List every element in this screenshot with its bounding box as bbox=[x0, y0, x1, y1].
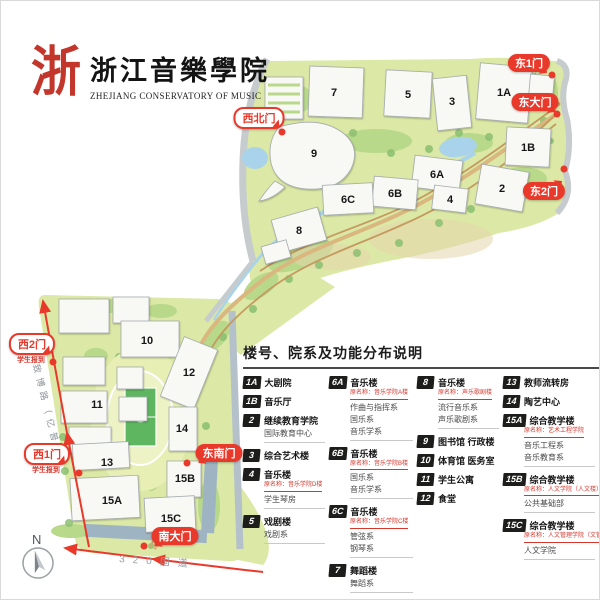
building-number-badge: 11 bbox=[416, 473, 434, 486]
department-item: 音乐工程系 bbox=[524, 440, 595, 452]
building-number-badge: 15A bbox=[502, 414, 526, 427]
departments-list: 音乐工程系音乐教育系 bbox=[524, 440, 595, 467]
gate-note-registration: 学生报到 bbox=[17, 355, 45, 365]
departments-list: 戏剧系 bbox=[264, 529, 325, 544]
departments-list: 公共基础部 bbox=[524, 498, 595, 513]
building-name: 体育馆 医务室 bbox=[438, 454, 495, 467]
building-label: 9 bbox=[311, 148, 317, 160]
gate-label-west1: 西1门 学生报到 bbox=[24, 443, 70, 465]
department-item: 音乐教育系 bbox=[524, 452, 595, 464]
building-label: 15B bbox=[175, 473, 195, 485]
legend-entry: 6C音乐楼原名称：音乐学院C楼管弦系钢琴系 bbox=[329, 505, 417, 558]
building-name: 音乐楼 bbox=[351, 376, 378, 389]
building-label: 1B bbox=[521, 142, 535, 154]
building-name: 继续教育学院 bbox=[264, 414, 318, 427]
departments-list: 舞蹈系 bbox=[350, 578, 413, 593]
legend-columns: 1A大剧院1B音乐厅2继续教育学院国际教育中心3综合艺术楼4音乐楼原名称：音乐学… bbox=[243, 376, 599, 599]
legend-entry: 1B音乐厅 bbox=[243, 395, 329, 408]
legend-entry: 8音乐楼原名称：声乐歌剧楼流行音乐系声乐歌剧系 bbox=[417, 376, 503, 429]
legend-column: 8音乐楼原名称：声乐歌剧楼流行音乐系声乐歌剧系9图书馆 行政楼10体育馆 医务室… bbox=[417, 376, 503, 599]
legend-entry: 15C综合教学楼原名称：人文管理学院（文管楼）人文学院 bbox=[503, 519, 599, 560]
school-name-cn: 浙江音樂學院 bbox=[90, 49, 270, 88]
departments-list: 人文学院 bbox=[524, 545, 595, 560]
building-name: 综合艺术楼 bbox=[264, 449, 309, 462]
department-item: 戏剧系 bbox=[264, 529, 325, 541]
gate-note-registration: 学生报到 bbox=[32, 465, 60, 475]
school-logo: 浙 浙江音樂學院 ZHEJIANG CONSERVATORY OF MUSIC bbox=[31, 49, 270, 101]
gate-label-southeast: 东南门 bbox=[196, 444, 243, 462]
gate-dot bbox=[184, 460, 191, 467]
building-name: 舞蹈楼 bbox=[350, 564, 377, 577]
building-number-badge: 8 bbox=[416, 376, 434, 389]
building-number-badge: 15B bbox=[502, 473, 526, 486]
building-number-badge: 13 bbox=[502, 376, 520, 389]
building-label: 10 bbox=[141, 335, 153, 347]
building-number-badge: 1A bbox=[242, 376, 261, 389]
legend-title: 楼号、院系及功能分布说明 bbox=[243, 343, 599, 369]
department-item: 管弦系 bbox=[350, 531, 413, 543]
legend-column: 1A大剧院1B音乐厅2继续教育学院国际教育中心3综合艺术楼4音乐楼原名称：音乐学… bbox=[243, 376, 329, 599]
department-item: 国际教育中心 bbox=[264, 428, 325, 440]
department-item: 公共基础部 bbox=[524, 498, 595, 510]
legend-panel: 楼号、院系及功能分布说明 1A大剧院1B音乐厅2继续教育学院国际教育中心3综合艺… bbox=[243, 343, 599, 599]
building-number-badge: 14 bbox=[502, 395, 520, 408]
compass-north-label: N bbox=[32, 532, 41, 547]
building-number-badge: 7 bbox=[328, 564, 346, 577]
legend-entry: 6A音乐楼原名称：音乐学院A楼作曲与指挥系国乐系音乐学系 bbox=[329, 376, 417, 441]
building-label: 6C bbox=[341, 194, 355, 206]
building-name: 音乐楼 bbox=[351, 447, 378, 460]
building-label: 11 bbox=[91, 399, 103, 411]
building-label: 3 bbox=[449, 96, 455, 108]
campus-map-page: 7 5 3 1A 9 1B 2 6A 4 6B 6C 8 10 12 11 14… bbox=[0, 0, 600, 600]
department-item: 国乐系 bbox=[350, 472, 413, 484]
compass: N bbox=[23, 532, 53, 578]
department-item: 声乐歌剧系 bbox=[438, 414, 499, 426]
departments-list: 流行音乐系声乐歌剧系 bbox=[438, 402, 499, 429]
gate-label-east1: 东1门 bbox=[508, 54, 550, 72]
building-number-badge: 12 bbox=[416, 492, 434, 505]
legend-entry: 9图书馆 行政楼 bbox=[417, 435, 503, 448]
department-item: 人文学院 bbox=[524, 545, 595, 557]
gate-label-west2: 西2门 学生报到 bbox=[9, 333, 55, 355]
department-item: 钢琴系 bbox=[350, 543, 413, 555]
legend-column: 13教师流转房14陶艺中心15A综合教学楼原名称：艺术工程学院音乐工程系音乐教育… bbox=[503, 376, 599, 599]
building-number-badge: 4 bbox=[242, 468, 260, 481]
legend-entry: 6B音乐楼原名称：音乐学院B楼国乐系音乐学系 bbox=[329, 447, 417, 500]
building-number-badge: 6A bbox=[328, 376, 347, 389]
building-number-badge: 15C bbox=[502, 519, 526, 532]
gate-dot bbox=[76, 470, 83, 477]
building-label: 12 bbox=[183, 367, 195, 379]
building-label: 8 bbox=[296, 225, 302, 237]
legend-entry: 2继续教育学院国际教育中心 bbox=[243, 414, 329, 443]
legend-entry: 5戏剧楼戏剧系 bbox=[243, 515, 329, 544]
departments-list: 国乐系音乐学系 bbox=[350, 472, 413, 499]
building-name: 戏剧楼 bbox=[264, 515, 291, 528]
legend-entry: 15A综合教学楼原名称：艺术工程学院音乐工程系音乐教育系 bbox=[503, 414, 599, 467]
building-number-badge: 2 bbox=[242, 414, 260, 427]
former-name-note: 原名称：音乐学院A楼 bbox=[350, 390, 408, 400]
building-number-badge: 6B bbox=[328, 447, 347, 460]
building-name: 教师流转房 bbox=[524, 376, 569, 389]
building-name: 陶艺中心 bbox=[524, 395, 560, 408]
former-name-note: 原名称：声乐歌剧楼 bbox=[438, 390, 492, 400]
building-number-badge: 1B bbox=[242, 395, 261, 408]
department-item: 流行音乐系 bbox=[438, 402, 499, 414]
building-name: 综合教学楼 bbox=[530, 473, 575, 486]
legend-entry: 15B综合教学楼原名称：人文学院（人文楼）公共基础部 bbox=[503, 473, 599, 514]
departments-list: 学生琴房 bbox=[264, 494, 325, 509]
building-label: 14 bbox=[176, 423, 189, 435]
building-name: 学生公寓 bbox=[438, 473, 474, 486]
building-label: 13 bbox=[101, 457, 113, 469]
building-label: 4 bbox=[447, 194, 454, 206]
gate-label-east-main: 东大门 bbox=[512, 93, 559, 111]
building-name: 音乐楼 bbox=[351, 505, 378, 518]
building-name: 音乐楼 bbox=[264, 468, 291, 481]
department-item: 舞蹈系 bbox=[350, 578, 413, 590]
former-name-note: 原名称：音乐学院B楼 bbox=[350, 461, 408, 471]
building-number-badge: 10 bbox=[416, 454, 434, 467]
legend-entry: 7舞蹈楼舞蹈系 bbox=[329, 564, 417, 593]
building-label: 2 bbox=[499, 183, 505, 195]
department-item: 学生琴房 bbox=[264, 494, 325, 506]
building-label: 6A bbox=[430, 169, 444, 181]
building-number-badge: 6C bbox=[328, 505, 347, 518]
building-label: 1A bbox=[497, 87, 511, 99]
former-name-note: 原名称：人文学院（人文楼） bbox=[524, 487, 600, 497]
legend-entry: 13教师流转房 bbox=[503, 376, 599, 389]
legend-entry: 12食堂 bbox=[417, 492, 503, 505]
building-number-badge: 3 bbox=[242, 449, 260, 462]
building-name: 音乐楼 bbox=[438, 376, 465, 389]
building-number-badge: 5 bbox=[242, 515, 260, 528]
department-item: 音乐学系 bbox=[350, 484, 413, 496]
department-item: 音乐学系 bbox=[350, 426, 413, 438]
school-name-en: ZHEJIANG CONSERVATORY OF MUSIC bbox=[90, 91, 270, 101]
building-name: 音乐厅 bbox=[265, 395, 292, 408]
departments-list: 国际教育中心 bbox=[264, 428, 325, 443]
building-label: 7 bbox=[331, 87, 337, 99]
building-name: 综合教学楼 bbox=[530, 414, 575, 427]
legend-entry: 10体育馆 医务室 bbox=[417, 454, 503, 467]
legend-entry: 14陶艺中心 bbox=[503, 395, 599, 408]
legend-entry: 11学生公寓 bbox=[417, 473, 503, 486]
gate-dot bbox=[561, 166, 568, 173]
building-number-badge: 9 bbox=[416, 435, 434, 448]
former-name-note: 原名称：艺术工程学院 bbox=[524, 428, 584, 438]
former-name-note: 原名称：音乐学院D楼 bbox=[264, 482, 322, 492]
building-name: 综合教学楼 bbox=[530, 519, 575, 532]
building-label: 6B bbox=[388, 188, 402, 200]
building-label: 5 bbox=[405, 89, 411, 101]
department-item: 作曲与指挥系 bbox=[350, 402, 413, 414]
legend-column: 6A音乐楼原名称：音乐学院A楼作曲与指挥系国乐系音乐学系6B音乐楼原名称：音乐学… bbox=[329, 376, 417, 599]
legend-entry: 3综合艺术楼 bbox=[243, 449, 329, 462]
gate-label-northwest: 西北门 bbox=[234, 107, 285, 129]
building-label: 15A bbox=[102, 495, 122, 507]
legend-entry: 1A大剧院 bbox=[243, 376, 329, 389]
building-name: 图书馆 行政楼 bbox=[438, 435, 495, 448]
legend-entry: 4音乐楼原名称：音乐学院D楼学生琴房 bbox=[243, 468, 329, 509]
departments-list: 管弦系钢琴系 bbox=[350, 531, 413, 558]
former-name-note: 原名称：人文管理学院（文管楼） bbox=[524, 533, 600, 543]
gate-label-east2: 东2门 bbox=[523, 182, 565, 200]
gate-label-south-main: 南大门 bbox=[152, 527, 199, 545]
logo-mark-icon: 浙 bbox=[31, 47, 81, 98]
departments-list: 作曲与指挥系国乐系音乐学系 bbox=[350, 402, 413, 441]
former-name-note: 原名称：音乐学院C楼 bbox=[350, 519, 408, 529]
department-item: 国乐系 bbox=[350, 414, 413, 426]
building-name: 食堂 bbox=[438, 492, 456, 505]
building-name: 大剧院 bbox=[265, 376, 292, 389]
building-label: 15C bbox=[161, 513, 181, 525]
